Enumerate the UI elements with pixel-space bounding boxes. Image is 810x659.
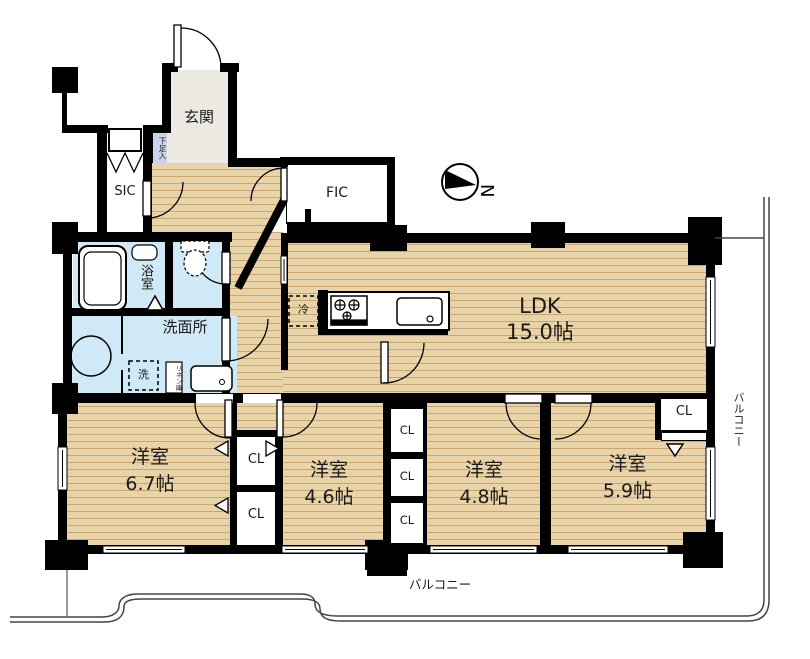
plan-annotations: N [0, 0, 810, 659]
linen-cabinet-label: リネン庫 [167, 364, 181, 392]
bedroom3-label: 洋室4.8帖 [430, 457, 538, 511]
round-fixture [71, 336, 111, 376]
sic-bifold-door [107, 153, 143, 172]
ldk-door-leaf [381, 342, 388, 383]
fixtures [71, 241, 449, 395]
closet-label: CL [237, 507, 275, 523]
washroom-door-arc [226, 319, 268, 361]
bedroom3-door-arc [506, 403, 542, 439]
bathroom-label: 浴室 [134, 253, 152, 301]
ldk-label: LDK15.0帖 [470, 293, 610, 345]
sic-door-arc [147, 182, 183, 218]
compass-north-label: N [476, 184, 497, 197]
diagonal-wall [238, 200, 284, 288]
closet-label: CL [661, 404, 707, 420]
stove [331, 296, 367, 325]
closet-door-marker [215, 441, 228, 456]
balcony-bottom-label: バルコニー [375, 577, 505, 593]
closet-label: CL [391, 469, 423, 483]
floor-plan: N [0, 0, 810, 659]
washroom-label: 洗面所 [145, 318, 225, 337]
bedroom1-door-leaf [225, 400, 232, 437]
washer-space-label: 洗 [129, 368, 158, 382]
shoe-cabinet-label: 下足入 [153, 134, 166, 162]
fridge-space-label: 冷 [289, 303, 318, 317]
fic-door-arc [251, 168, 284, 201]
toilet [181, 241, 209, 276]
closet-door-marker [215, 498, 228, 513]
bedroom2-label: 洋室4.6帖 [277, 457, 381, 511]
bedroom4-door-leaf [555, 394, 592, 403]
bedroom3-door-leaf [505, 394, 542, 403]
closet-label: CL [237, 452, 275, 468]
toilet-door-leaf [222, 252, 230, 284]
bedroom2-door-leaf [277, 400, 283, 437]
bedroom1-label: 洋室6.7帖 [85, 444, 215, 498]
ldk-door-arc [384, 343, 424, 383]
sic-door-leaf [143, 181, 151, 216]
bedroom2-door-arc [283, 403, 317, 437]
sic-label: SIC [107, 184, 143, 200]
compass-icon: N [442, 164, 497, 200]
washroom-sink [191, 366, 232, 391]
balcony-right-label: バルコニー [728, 382, 744, 457]
entrance-label: 玄関 [170, 108, 228, 127]
bedroom4-label: 洋室5.9帖 [565, 451, 690, 505]
entrance-door-arc [181, 28, 221, 67]
bathtub [79, 246, 126, 310]
closet-label: CL [391, 423, 423, 437]
kitchen-sink [397, 298, 442, 325]
entrance-door-leaf [174, 25, 181, 67]
bedroom4-door-arc [555, 403, 591, 439]
closet-label: CL [391, 513, 423, 527]
fic-label: FIC [287, 185, 387, 203]
